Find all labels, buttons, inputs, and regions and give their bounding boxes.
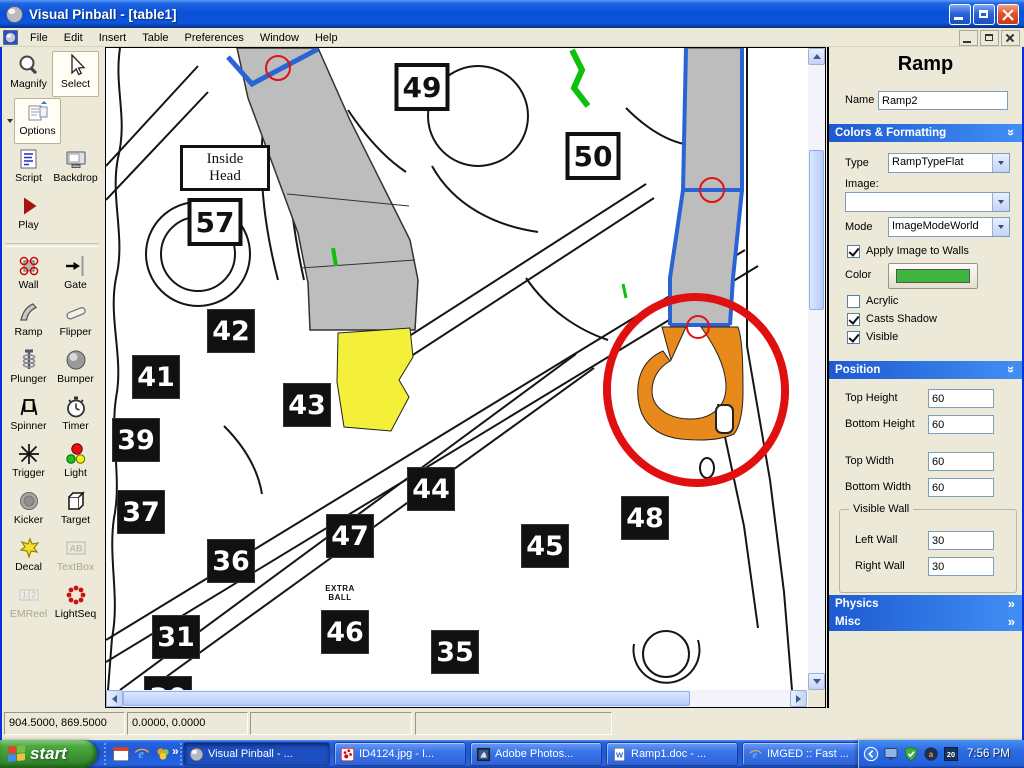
tool-flipper-button[interactable]: Flipper bbox=[52, 299, 99, 345]
task-label: Visual Pinball - ... bbox=[208, 748, 293, 760]
tool-emreel-button: 12EMReel bbox=[5, 581, 52, 627]
tool-options-button[interactable]: Options bbox=[14, 98, 61, 144]
top-height-input[interactable] bbox=[928, 389, 994, 408]
bumper-icon bbox=[64, 348, 88, 372]
playfield-number-42: 42 bbox=[208, 310, 254, 352]
taskbar-task-button[interactable]: Visual Pinball - ... bbox=[183, 742, 330, 766]
mode-label: Mode bbox=[845, 221, 873, 233]
title-bar[interactable]: Visual Pinball - [table1] bbox=[0, 0, 1024, 28]
menu-preferences[interactable]: Preferences bbox=[177, 30, 252, 46]
visual-pinball-window: Visual Pinball - [table1] FileEditInsert… bbox=[0, 0, 1024, 768]
svg-text:1: 1 bbox=[22, 591, 27, 600]
color-label: Color bbox=[845, 269, 871, 281]
a-icon[interactable]: a bbox=[923, 746, 939, 762]
svg-text:e: e bbox=[753, 749, 758, 760]
bottom-height-label: Bottom Height bbox=[845, 418, 915, 430]
bottom-width-input[interactable] bbox=[928, 478, 994, 497]
close-button[interactable] bbox=[997, 4, 1019, 25]
bottom-height-input[interactable] bbox=[928, 415, 994, 434]
tool-spinner-button[interactable]: Spinner bbox=[5, 393, 52, 439]
tool-textbox-button: ABTextBox bbox=[52, 534, 99, 580]
tool-ramp-button[interactable]: Ramp bbox=[5, 299, 52, 345]
mode-dropdown[interactable]: ImageModeWorld bbox=[888, 217, 1010, 237]
type-dropdown[interactable]: RampTypeFlat bbox=[888, 153, 1010, 173]
playfield-number-46: 46 bbox=[322, 611, 368, 653]
acrylic-checkbox[interactable] bbox=[847, 295, 860, 308]
menu-table[interactable]: Table bbox=[134, 30, 176, 46]
scroll-down-button[interactable] bbox=[808, 673, 825, 690]
tool-select-button[interactable]: Select bbox=[52, 51, 99, 97]
tool-label: Flipper bbox=[59, 326, 91, 338]
decal-icon bbox=[17, 536, 41, 560]
pinball-ball-icon bbox=[189, 747, 204, 762]
playfield-number-plates: InsideHead EXTRABALL 4950574241433944374… bbox=[106, 48, 807, 690]
tool-label: LightSeq bbox=[55, 608, 96, 620]
playfield-number-43: 43 bbox=[284, 384, 330, 426]
tool-label: Plunger bbox=[10, 373, 46, 385]
tool-label: Backdrop bbox=[53, 172, 97, 184]
display-icon[interactable] bbox=[883, 746, 899, 762]
taskbar: start e » Visual Pinball - ...ID4124.jpg… bbox=[0, 740, 1024, 768]
cursor-coordinates: 904.5000, 869.5000 bbox=[4, 712, 125, 735]
tool-backdrop-button[interactable]: Backdrop bbox=[52, 145, 99, 191]
quick-launch-separator bbox=[104, 743, 106, 765]
tool-bumper-button[interactable]: Bumper bbox=[52, 346, 99, 392]
backdrop-icon bbox=[64, 147, 88, 171]
playfield-number-36: 36 bbox=[208, 540, 254, 582]
app-window-icon[interactable] bbox=[112, 745, 130, 763]
tool-label: EMReel bbox=[10, 608, 47, 620]
menu-bar: FileEditInsertTablePreferencesWindowHelp bbox=[0, 28, 1024, 47]
select-icon bbox=[64, 53, 88, 77]
section-colors-formatting[interactable]: Colors & Formatting » bbox=[829, 124, 1022, 142]
properties-panel: Ramp Name Colors & Formatting » Type Ram… bbox=[827, 47, 1024, 708]
script-icon bbox=[17, 147, 41, 171]
tool-label: Select bbox=[61, 78, 90, 90]
scroll-right-button[interactable] bbox=[790, 690, 807, 707]
taskbar-task-button[interactable]: WRamp1.doc - ... bbox=[606, 742, 738, 766]
section-position[interactable]: Position » bbox=[829, 361, 1022, 379]
tool-label: TextBox bbox=[57, 561, 94, 573]
horizontal-scrollbar[interactable] bbox=[106, 690, 807, 707]
status-panel-3 bbox=[250, 712, 412, 735]
mdi-close-button[interactable] bbox=[1001, 30, 1020, 46]
vertical-scrollbar[interactable] bbox=[808, 48, 825, 690]
scroll-left-button[interactable] bbox=[106, 690, 123, 707]
mdi-minimize-button[interactable] bbox=[959, 30, 978, 46]
tool-lightseq-button[interactable]: LightSeq bbox=[52, 581, 99, 627]
toolbox: MagnifySelectOptionsScriptBackdropPlayWa… bbox=[0, 47, 104, 708]
tool-label: Play bbox=[18, 219, 38, 231]
tool-script-button[interactable]: Script bbox=[5, 145, 52, 191]
shield-icon[interactable] bbox=[903, 746, 919, 762]
quick-launch-separator bbox=[180, 743, 182, 765]
tool-magnify-button[interactable]: Magnify bbox=[5, 51, 52, 97]
left-wall-label: Left Wall bbox=[855, 534, 897, 546]
start-button[interactable]: start bbox=[0, 740, 97, 768]
name-label: Name bbox=[845, 94, 874, 106]
ramp-icon bbox=[17, 301, 41, 325]
play-icon bbox=[17, 194, 41, 218]
chevron-down-icon[interactable] bbox=[992, 193, 1009, 211]
visible-label: Visible bbox=[866, 331, 898, 343]
playfield-number-57: 57 bbox=[188, 198, 243, 246]
casts-shadow-label: Casts Shadow bbox=[866, 313, 937, 325]
windows-flag-icon bbox=[8, 745, 25, 763]
task-label: Adobe Photos... bbox=[495, 748, 573, 760]
playfield-number-41: 41 bbox=[133, 356, 179, 398]
svg-text:2: 2 bbox=[31, 591, 36, 600]
chevron-right-icon[interactable]: » bbox=[1008, 614, 1015, 629]
emreel-icon: 12 bbox=[17, 583, 41, 607]
taskbar-clock: 7:56 PM bbox=[967, 748, 1010, 760]
quick-launch-overflow-chevron[interactable]: » bbox=[172, 744, 179, 758]
apply-image-to-walls-row: Apply Image to Walls bbox=[847, 244, 969, 258]
playfield-number-47: 47 bbox=[327, 515, 373, 557]
hide-icons-chevron-icon[interactable] bbox=[863, 746, 879, 762]
magnify-icon bbox=[17, 53, 41, 77]
left-wall-input[interactable] bbox=[928, 531, 994, 550]
task-label: IMGED :: Fast ... bbox=[767, 748, 849, 760]
kicker-icon bbox=[17, 489, 41, 513]
chevron-down-icon[interactable] bbox=[992, 154, 1009, 172]
panel-title: Ramp bbox=[829, 53, 1022, 76]
tool-light-button[interactable]: Light bbox=[52, 440, 99, 486]
playfield-number-35: 35 bbox=[432, 631, 478, 673]
textbox-icon: AB bbox=[64, 536, 88, 560]
inside-head-label: InsideHead bbox=[180, 145, 270, 191]
task-label: ID4124.jpg - I... bbox=[359, 748, 434, 760]
bottom-width-label: Bottom Width bbox=[845, 481, 911, 493]
playfield-canvas[interactable]: InsideHead EXTRABALL 4950574241433944374… bbox=[106, 48, 807, 690]
tool-label: Script bbox=[15, 172, 42, 184]
tool-label: Decal bbox=[15, 561, 42, 573]
playfield-number-39: 39 bbox=[113, 419, 159, 461]
taskbar-task-button[interactable]: eIMGED :: Fast ... bbox=[742, 742, 874, 766]
top-width-label: Top Width bbox=[845, 455, 894, 467]
playfield-number-30: 30 bbox=[145, 677, 191, 690]
playfield-number-48: 48 bbox=[622, 497, 668, 539]
playfield-number-37: 37 bbox=[118, 491, 164, 533]
tool-label: Target bbox=[61, 514, 90, 526]
casts-shadow-checkbox[interactable] bbox=[847, 313, 860, 326]
svg-text:W: W bbox=[616, 750, 624, 759]
ie-icon[interactable]: e bbox=[133, 745, 151, 763]
restore-button[interactable] bbox=[973, 4, 995, 25]
horizontal-scroll-thumb[interactable] bbox=[123, 691, 690, 706]
menu-edit[interactable]: Edit bbox=[56, 30, 91, 46]
scrollbar-corner bbox=[808, 690, 825, 707]
tool-wall-button[interactable]: Wall bbox=[5, 252, 52, 298]
visible-wall-legend: Visible Wall bbox=[849, 503, 913, 515]
tool-label: Gate bbox=[64, 279, 87, 291]
playfield-number-31: 31 bbox=[153, 616, 199, 658]
timer-icon bbox=[64, 395, 88, 419]
acrylic-label: Acrylic bbox=[866, 295, 898, 307]
tool-trigger-button[interactable]: Trigger bbox=[5, 440, 52, 486]
apply-image-to-walls-checkbox[interactable] bbox=[847, 245, 860, 258]
apply-image-to-walls-label: Apply Image to Walls bbox=[866, 245, 969, 257]
vertical-scroll-thumb[interactable] bbox=[809, 150, 824, 310]
wall-icon bbox=[17, 254, 41, 278]
gate-icon bbox=[64, 254, 88, 278]
tool-label: Ramp bbox=[14, 326, 42, 338]
word-icon: W bbox=[612, 747, 627, 762]
menu-help[interactable]: Help bbox=[307, 30, 346, 46]
image-label: Image: bbox=[845, 178, 879, 190]
light-icon bbox=[64, 442, 88, 466]
top-width-input[interactable] bbox=[928, 452, 994, 471]
color-button[interactable] bbox=[888, 263, 978, 289]
menu-window[interactable]: Window bbox=[252, 30, 307, 46]
tool-decal-button[interactable]: Decal bbox=[5, 534, 52, 580]
type-label: Type bbox=[845, 157, 869, 169]
options-icon bbox=[26, 100, 50, 124]
tool-timer-button[interactable]: Timer bbox=[52, 393, 99, 439]
playfield-number-44: 44 bbox=[408, 468, 454, 510]
toolbox-separator bbox=[5, 243, 99, 247]
scroll-up-button[interactable] bbox=[808, 48, 825, 65]
status-panel-4 bbox=[415, 712, 612, 735]
right-wall-label: Right Wall bbox=[855, 560, 905, 572]
taskbar-task-button[interactable]: Adobe Photos... bbox=[470, 742, 602, 766]
minimize-button[interactable] bbox=[949, 4, 971, 25]
acrylic-row: Acrylic bbox=[847, 294, 898, 308]
visible-checkbox[interactable] bbox=[847, 331, 860, 344]
trigger-icon bbox=[17, 442, 41, 466]
tool-label: Light bbox=[64, 467, 87, 479]
task-label: Ramp1.doc - ... bbox=[631, 748, 706, 760]
mdi-restore-button[interactable] bbox=[980, 30, 999, 46]
color-swatch bbox=[896, 269, 970, 283]
ie-icon: e bbox=[748, 747, 763, 762]
top-height-label: Top Height bbox=[845, 392, 898, 404]
svg-text:20: 20 bbox=[947, 750, 955, 759]
chevron-down-icon[interactable]: » bbox=[1004, 366, 1019, 373]
playfield-number-45: 45 bbox=[522, 525, 568, 567]
tool-target-button[interactable]: Target bbox=[52, 487, 99, 533]
taskbar-task-button[interactable]: ID4124.jpg - I... bbox=[334, 742, 466, 766]
tool-gate-button[interactable]: Gate bbox=[52, 252, 99, 298]
playfield-number-50: 50 bbox=[566, 132, 621, 180]
chevron-down-icon[interactable] bbox=[992, 218, 1009, 236]
tool-label: Timer bbox=[62, 420, 88, 432]
app-ball-icon bbox=[5, 5, 24, 24]
lightseq-icon bbox=[64, 583, 88, 607]
tool-label: Wall bbox=[18, 279, 38, 291]
messenger-icon[interactable] bbox=[154, 745, 172, 763]
editor-canvas-frame: InsideHead EXTRABALL 4950574241433944374… bbox=[105, 47, 826, 708]
playfield-number-49: 49 bbox=[395, 63, 450, 111]
tool-label: Spinner bbox=[10, 420, 46, 432]
window-title: Visual Pinball - [table1] bbox=[29, 7, 177, 22]
spinner-icon bbox=[17, 395, 41, 419]
section-misc[interactable]: Misc » bbox=[829, 613, 1022, 631]
irfanview-icon bbox=[340, 747, 355, 762]
visible-row: Visible bbox=[847, 330, 898, 344]
right-wall-input[interactable] bbox=[928, 557, 994, 576]
tool-label: Kicker bbox=[14, 514, 43, 526]
table-window-icon bbox=[3, 30, 18, 45]
photoshop-icon bbox=[476, 747, 491, 762]
select-dropdown-arrow[interactable] bbox=[5, 98, 14, 144]
name-input[interactable] bbox=[878, 91, 1008, 110]
svg-text:AB: AB bbox=[69, 544, 82, 554]
calendar-20-icon[interactable]: 20 bbox=[943, 746, 959, 762]
tool-plunger-button[interactable]: Plunger bbox=[5, 346, 52, 392]
svg-text:a: a bbox=[929, 750, 934, 759]
tool-kicker-button[interactable]: Kicker bbox=[5, 487, 52, 533]
tool-label: Magnify bbox=[10, 78, 47, 90]
menu-file[interactable]: File bbox=[22, 30, 56, 46]
selection-coordinates: 0.0000, 0.0000 bbox=[127, 712, 248, 735]
section-physics[interactable]: Physics » bbox=[829, 595, 1022, 613]
system-tray: a20 7:56 PM bbox=[858, 740, 1024, 768]
chevron-down-icon[interactable]: » bbox=[1004, 129, 1019, 136]
chevron-right-icon[interactable]: » bbox=[1008, 596, 1015, 611]
tool-play-button[interactable]: Play bbox=[5, 192, 52, 238]
flipper-icon bbox=[64, 301, 88, 325]
target-icon bbox=[64, 489, 88, 513]
casts-shadow-row: Casts Shadow bbox=[847, 312, 937, 326]
visible-wall-group bbox=[839, 509, 1017, 593]
plunger-icon bbox=[17, 348, 41, 372]
status-bar: 904.5000, 869.5000 0.0000, 0.0000 bbox=[0, 708, 1024, 740]
extra-ball-label: EXTRABALL bbox=[325, 584, 355, 602]
tool-label: Options bbox=[19, 125, 55, 137]
tool-label: Trigger bbox=[12, 467, 45, 479]
tool-label: Bumper bbox=[57, 373, 94, 385]
image-dropdown[interactable] bbox=[845, 192, 1010, 212]
menu-insert[interactable]: Insert bbox=[91, 30, 135, 46]
